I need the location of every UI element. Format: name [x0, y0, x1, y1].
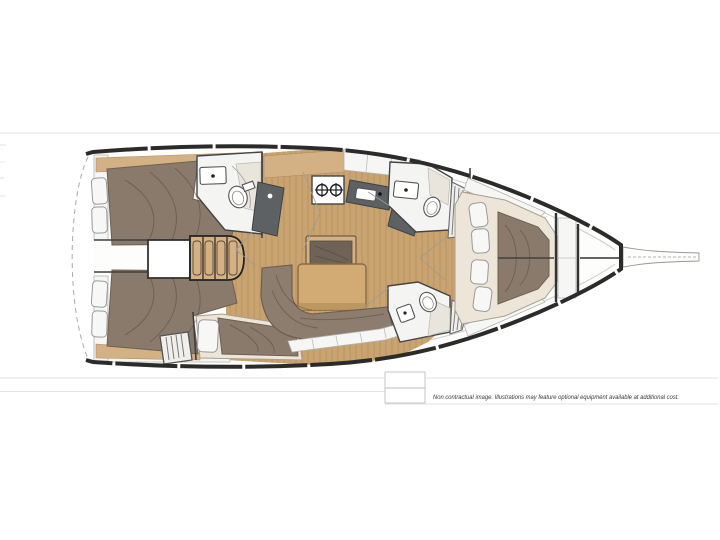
- legend-box: [385, 372, 425, 403]
- pillow: [92, 207, 108, 234]
- pillow: [472, 286, 492, 312]
- disclaimer-text: Non contractual image. Illustrations may…: [433, 394, 679, 401]
- nav-lamp: [268, 194, 273, 199]
- pillow: [92, 311, 108, 338]
- stove: [312, 176, 344, 204]
- slatted-steps: [160, 332, 192, 364]
- engine-hatch: [148, 240, 190, 278]
- pillow: [197, 319, 219, 352]
- pillow: [470, 259, 489, 284]
- pillow: [91, 281, 108, 308]
- bench-cushion: [310, 241, 352, 265]
- galley-sink: [355, 188, 376, 202]
- pillow: [91, 177, 108, 204]
- companionway: [148, 236, 244, 280]
- pillow: [468, 202, 488, 228]
- screenshot-root: Non contractual image. Illustrations may…: [0, 0, 720, 540]
- yacht-layout-plan: Non contractual image. Illustrations may…: [0, 0, 720, 540]
- pillow: [471, 228, 490, 253]
- companionway-stairs: [190, 236, 244, 280]
